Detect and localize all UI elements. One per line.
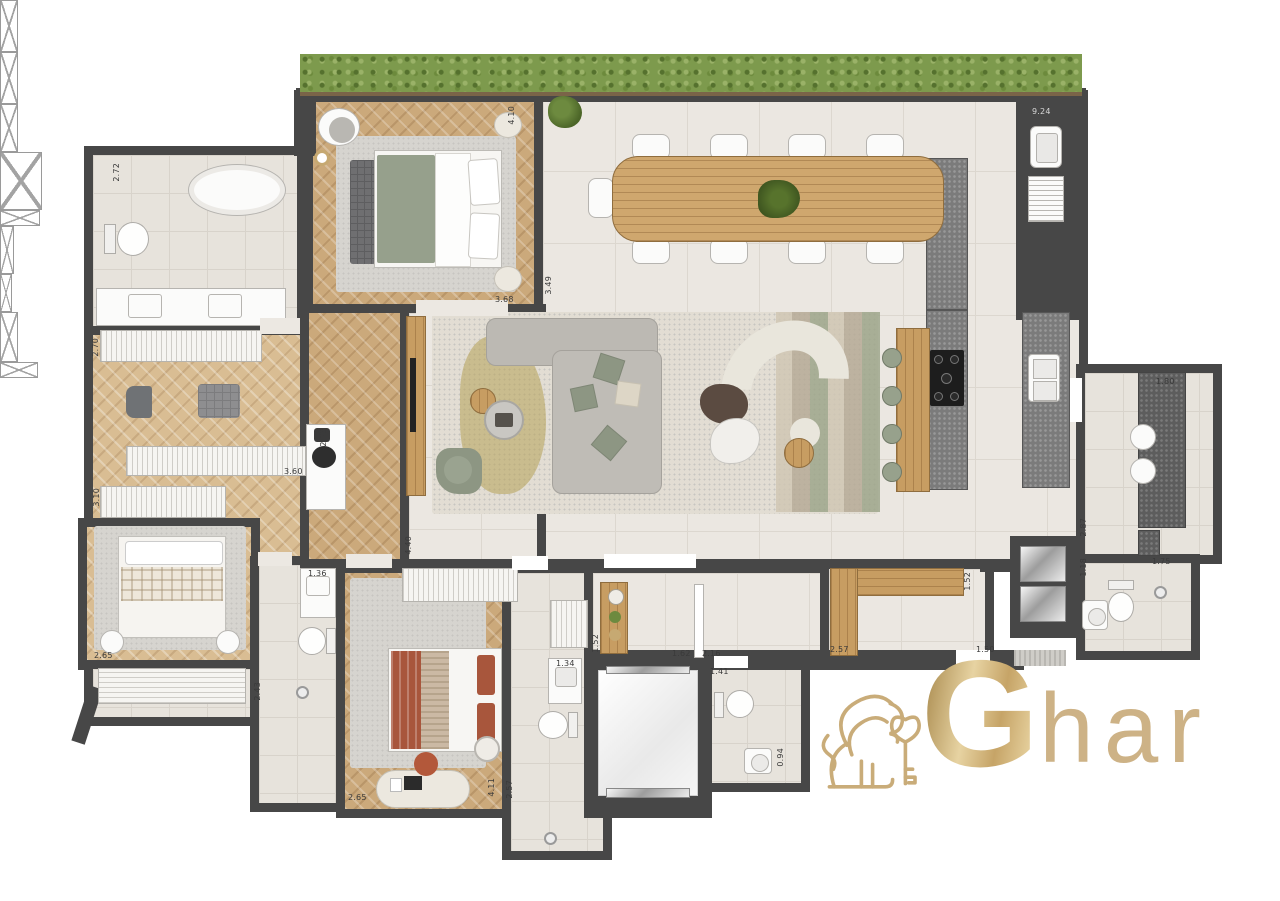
hedge-planting [300,54,1082,96]
dining-chair [588,178,614,218]
sink [306,576,330,596]
toilet-bowl [1108,592,1134,622]
toilet-tank [326,628,336,654]
bar-stool [882,348,902,368]
dim-label: 2.87 [1080,518,1088,537]
bar-stool [882,386,902,406]
lounge-chair [318,108,360,146]
window [0,362,38,378]
decor-plant [609,611,621,623]
dim-label: 3.60 [284,468,303,476]
shower-head [1154,586,1167,599]
bed-pillow [477,655,495,695]
refrigerator [0,152,42,210]
sofa-cushion [570,384,598,412]
toilet-bowl [117,222,149,256]
floor-plan: 2.72 2.70 3.10 3.60 2.38 4.10 3.68 3.49 … [0,0,1280,901]
l-counter-side [830,568,858,656]
toilet-tank [104,224,116,254]
dish-rack [1028,176,1064,222]
service-counter [1138,372,1186,528]
door-service-room [1070,378,1082,422]
cooktop [930,350,964,406]
ghar-logo: G har [815,645,1225,830]
toilet-bowl [726,690,754,718]
laundry-basin [1130,458,1156,484]
dim-label: 2.57 [506,780,514,799]
shower-head [544,832,557,845]
plant [548,96,582,128]
door-bathroom-left [258,552,292,566]
dim-label: 1.75 [1152,558,1171,566]
dim-label: 4.11 [488,778,496,797]
service-cabinet [1138,530,1160,556]
dim-label: 1.36 [308,570,327,578]
toilet-tank [1108,580,1134,590]
double-sink [1028,354,1060,402]
elevator-door [606,788,690,798]
shower-head [296,686,309,699]
console-table [600,582,628,654]
notebook [390,778,402,792]
tv [410,358,416,432]
bed-sheet [435,153,471,267]
dryer [1020,586,1066,622]
bar-stool [882,462,902,482]
dim-label: 1.62 [672,650,691,658]
desk-stool [414,752,438,776]
bed [118,536,226,638]
dim-label: 2.65 [348,794,367,802]
window [0,274,12,312]
vanity-counter [96,288,286,326]
dim-label: 1.80 [1156,378,1175,386]
bed [374,150,502,268]
toilet-bowl [298,627,326,655]
bed-pillows [125,541,223,565]
bed-blanket-terracotta [391,651,421,749]
closet-chair [126,386,152,418]
chair-cushion [329,117,355,143]
elevator-door [606,666,690,674]
dim-label: 3.49 [545,276,553,295]
decor-bowl [609,629,621,641]
elevator-cab [598,670,698,796]
shower-screen [0,226,14,274]
dim-label: 1.34 [556,660,575,668]
logo-monogram: G [921,645,1039,785]
dim-label: 9.24 [1032,108,1051,116]
door-entry-partition [694,584,704,658]
dim-label: 3.10 [93,488,101,507]
dim-label: 3.68 [495,296,514,304]
dim-label: 2.65 [94,652,113,660]
dim-label: 4.10 [508,106,516,125]
dim-label: 0.94 [777,748,785,767]
desk-chair [312,446,336,468]
tv-sideboard [406,316,426,496]
cabinet [0,210,40,226]
terrace-bench [98,668,246,704]
side-table [484,400,524,440]
toilet-tank [568,712,578,738]
bed-duvet [377,155,435,263]
bed-runner [421,651,449,749]
shower-window [0,104,18,152]
bathtub [188,164,286,216]
sink [744,748,772,774]
door-bathroom-center [512,556,548,570]
washer [1020,546,1066,582]
lion-with-key-icon [815,681,935,815]
vanity-sink [208,294,242,318]
bed-bench [350,160,376,264]
office-link-wall [980,560,1024,572]
door-living-entry [604,554,696,568]
door-hall-bedroom-center [346,554,392,568]
toilet-tank [714,692,724,718]
window [0,52,18,104]
ottoman [198,384,240,418]
armchair [436,448,482,494]
dim-label: 2.72 [113,163,121,182]
linen-shelves [550,600,588,648]
toilet-bowl [538,711,568,739]
bed-pillow [468,212,500,260]
window [0,312,18,362]
floor-lamp [314,150,330,166]
dim-label: 2.43 [254,682,262,701]
dim-label: 2.70 [92,338,100,357]
dim-label: 1.18 [1080,558,1088,577]
window [0,0,18,52]
dim-label: 2.38 [320,428,328,447]
wardrobe [100,486,226,518]
kitchen-sink [1030,126,1062,168]
laundry-basin [1130,424,1156,450]
bed-pillow [467,158,500,206]
door-bath-closet [260,318,300,334]
dim-label: 2.16 [702,650,721,658]
sink [1082,600,1108,630]
pouf [494,266,522,292]
pouf [474,736,500,762]
wall-segment [294,90,316,156]
logo-wordmark: har [1039,679,1211,777]
laptop [404,776,422,790]
dim-label: 1.41 [710,668,729,676]
wardrobe [402,568,518,602]
nightstand [216,630,240,654]
wardrobe [126,446,306,476]
side-table-wood [784,438,814,468]
dim-label: 1.52 [592,634,600,653]
decor-vase [608,589,624,605]
vanity-sink [128,294,162,318]
wardrobe [100,330,262,362]
dim-label: 4.40 [405,536,413,555]
sofa-cushion [614,380,641,407]
bed-plaid-blanket [121,567,223,601]
bar-stool [882,424,902,444]
dim-label: 1.52 [964,572,972,591]
